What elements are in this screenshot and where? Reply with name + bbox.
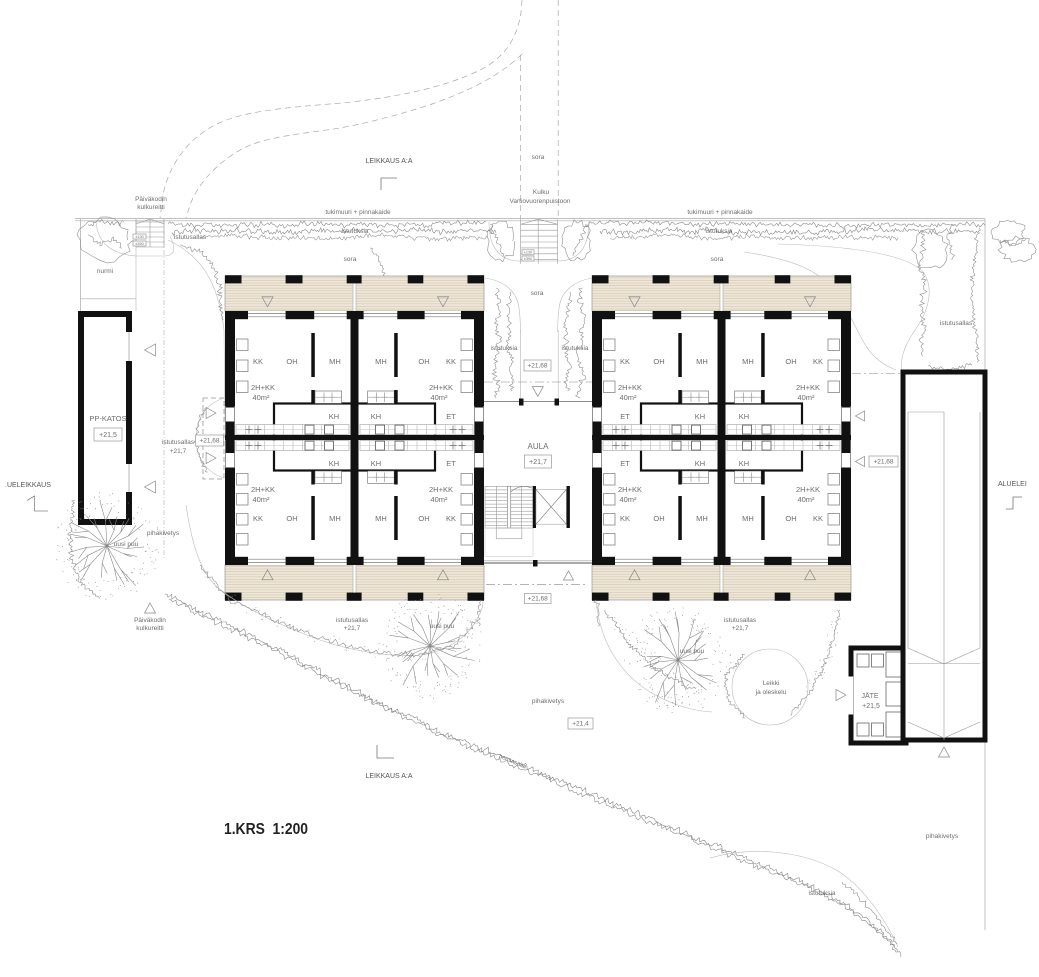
svg-text:istutusallas: istutusallas — [940, 320, 973, 327]
svg-text:istutuksia: istutuksia — [808, 890, 835, 897]
svg-text:Päiväkodin: Päiväkodin — [134, 617, 166, 624]
svg-text:40m²: 40m² — [619, 393, 637, 402]
svg-text:OH: OH — [418, 514, 429, 523]
svg-text:istutusallas: istutusallas — [174, 234, 207, 241]
svg-text:uusi puu: uusi puu — [680, 648, 705, 655]
svg-text:PP-KATOS: PP-KATOS — [89, 414, 126, 423]
svg-text:KK: KK — [620, 357, 630, 366]
svg-text:nurmi: nurmi — [97, 268, 113, 275]
svg-text:+21,68: +21,68 — [527, 363, 547, 370]
svg-text:KH: KH — [329, 412, 339, 421]
svg-text:MH: MH — [742, 357, 754, 366]
svg-text:MH: MH — [329, 514, 341, 523]
svg-text:Vartiovuorenpuistoon: Vartiovuorenpuistoon — [510, 198, 571, 205]
svg-text:pihakivetys: pihakivetys — [926, 833, 959, 840]
svg-text:kulkureitti: kulkureitti — [136, 625, 163, 632]
svg-text:MH: MH — [375, 514, 387, 523]
svg-text:KK: KK — [253, 514, 263, 523]
svg-text:MH: MH — [742, 514, 754, 523]
svg-text:+21,4: +21,4 — [572, 721, 589, 728]
svg-text:KH: KH — [695, 412, 705, 421]
svg-text:2H+KK: 2H+KK — [618, 485, 642, 494]
svg-text:OH: OH — [653, 514, 664, 523]
svg-text:+21,68: +21,68 — [199, 438, 219, 445]
svg-text:+21,7: +21,7 — [529, 459, 547, 466]
svg-text:OH: OH — [286, 357, 297, 366]
svg-text:2H+KK: 2H+KK — [251, 383, 275, 392]
svg-text:.UELEIKKAUS: .UELEIKKAUS — [5, 482, 51, 489]
svg-text:2H+KK: 2H+KK — [618, 383, 642, 392]
svg-text:sora: sora — [532, 154, 545, 161]
svg-text:2H+KK: 2H+KK — [429, 485, 453, 494]
svg-text:KK: KK — [253, 357, 263, 366]
svg-text:ET: ET — [620, 412, 630, 421]
svg-text:pihakivetys: pihakivetys — [147, 530, 180, 537]
svg-text:LEIKKAUS A:A: LEIKKAUS A:A — [365, 773, 412, 780]
svg-text:KK: KK — [813, 357, 823, 366]
svg-text:istutusallas: istutusallas — [336, 617, 369, 624]
svg-text:istutuksia: istutuksia — [561, 345, 588, 352]
svg-text:KK: KK — [446, 514, 456, 523]
svg-text:40m²: 40m² — [430, 495, 448, 504]
svg-text:istutuksia: istutuksia — [705, 228, 732, 235]
svg-text:kulkureitti: kulkureitti — [137, 204, 164, 211]
svg-text:sora: sora — [711, 256, 724, 263]
svg-text:OH: OH — [785, 514, 796, 523]
svg-text:+21,5: +21,5 — [99, 432, 117, 439]
svg-text:MH: MH — [375, 357, 387, 366]
svg-text:KK: KK — [446, 357, 456, 366]
svg-text:KH: KH — [371, 412, 381, 421]
svg-text:MH: MH — [696, 514, 708, 523]
svg-text:+21,68: +21,68 — [528, 596, 548, 603]
svg-text:ja oleskelu: ja oleskelu — [755, 689, 787, 696]
svg-text:KH: KH — [695, 459, 705, 468]
svg-text:OH: OH — [418, 357, 429, 366]
svg-text:+21,7: +21,7 — [170, 448, 187, 455]
svg-text:uusi puu: uusi puu — [430, 623, 455, 630]
svg-text:MH: MH — [329, 357, 341, 366]
svg-text:KH: KH — [329, 459, 339, 468]
svg-text:40m²: 40m² — [252, 495, 270, 504]
svg-text:MH: MH — [696, 357, 708, 366]
svg-text:Kulku: Kulku — [533, 189, 550, 196]
svg-text:Päiväkodin: Päiväkodin — [135, 196, 167, 203]
svg-text:JÄTE: JÄTE — [861, 692, 878, 700]
svg-text:+21,7: +21,7 — [732, 625, 749, 632]
svg-text:ET: ET — [446, 412, 456, 421]
svg-text:pihakivetys: pihakivetys — [532, 698, 565, 705]
svg-text:40m²: 40m² — [797, 495, 815, 504]
svg-text:tukimuuri + pinnakaide: tukimuuri + pinnakaide — [687, 209, 753, 216]
svg-text:istutuksia: istutuksia — [341, 228, 368, 235]
svg-text:ET: ET — [446, 459, 456, 468]
svg-text:±390: ±390 — [524, 257, 532, 261]
svg-text:1.KRS 1:200: 1.KRS 1:200 — [224, 821, 308, 838]
svg-text:+21,5: +21,5 — [862, 703, 880, 710]
svg-text:+21,7: +21,7 — [344, 625, 361, 632]
svg-text:+21,68: +21,68 — [873, 459, 893, 466]
svg-text:istutusallas: istutusallas — [162, 439, 195, 446]
svg-text:LEIKKAUS A:A: LEIKKAUS A:A — [365, 158, 412, 165]
svg-text:sora: sora — [531, 290, 544, 297]
svg-text:40m²: 40m² — [252, 393, 270, 402]
svg-text:istutuksia: istutuksia — [490, 345, 517, 352]
svg-text:Leikki: Leikki — [763, 680, 780, 687]
svg-text:ET: ET — [620, 459, 630, 468]
svg-text:uusi puu: uusi puu — [114, 541, 139, 548]
svg-text:OH: OH — [286, 514, 297, 523]
svg-text:KK: KK — [813, 514, 823, 523]
svg-text:2H+KK: 2H+KK — [796, 383, 820, 392]
svg-text:±130: ±130 — [135, 235, 143, 239]
svg-text:KH: KH — [371, 459, 381, 468]
svg-text:istutusallas: istutusallas — [724, 617, 757, 624]
svg-text:40m²: 40m² — [797, 393, 815, 402]
svg-text:tukimuuri + pinnakaide: tukimuuri + pinnakaide — [325, 209, 391, 216]
svg-text:40m²: 40m² — [619, 495, 637, 504]
svg-text:KH: KH — [739, 412, 749, 421]
svg-text:KH: KH — [739, 459, 749, 468]
svg-text:2H+KK: 2H+KK — [796, 485, 820, 494]
svg-text:2H+KK: 2H+KK — [429, 383, 453, 392]
svg-text:AULA: AULA — [528, 442, 550, 451]
svg-text:±390: ±390 — [135, 242, 143, 246]
svg-text:OH: OH — [653, 357, 664, 366]
svg-text:2H+KK: 2H+KK — [251, 485, 275, 494]
svg-text:OH: OH — [785, 357, 796, 366]
svg-text:sora: sora — [344, 256, 357, 263]
svg-text:±130: ±130 — [524, 251, 532, 255]
svg-text:ALUELEI: ALUELEI — [998, 481, 1027, 488]
svg-text:40m²: 40m² — [430, 393, 448, 402]
svg-text:KK: KK — [620, 514, 630, 523]
